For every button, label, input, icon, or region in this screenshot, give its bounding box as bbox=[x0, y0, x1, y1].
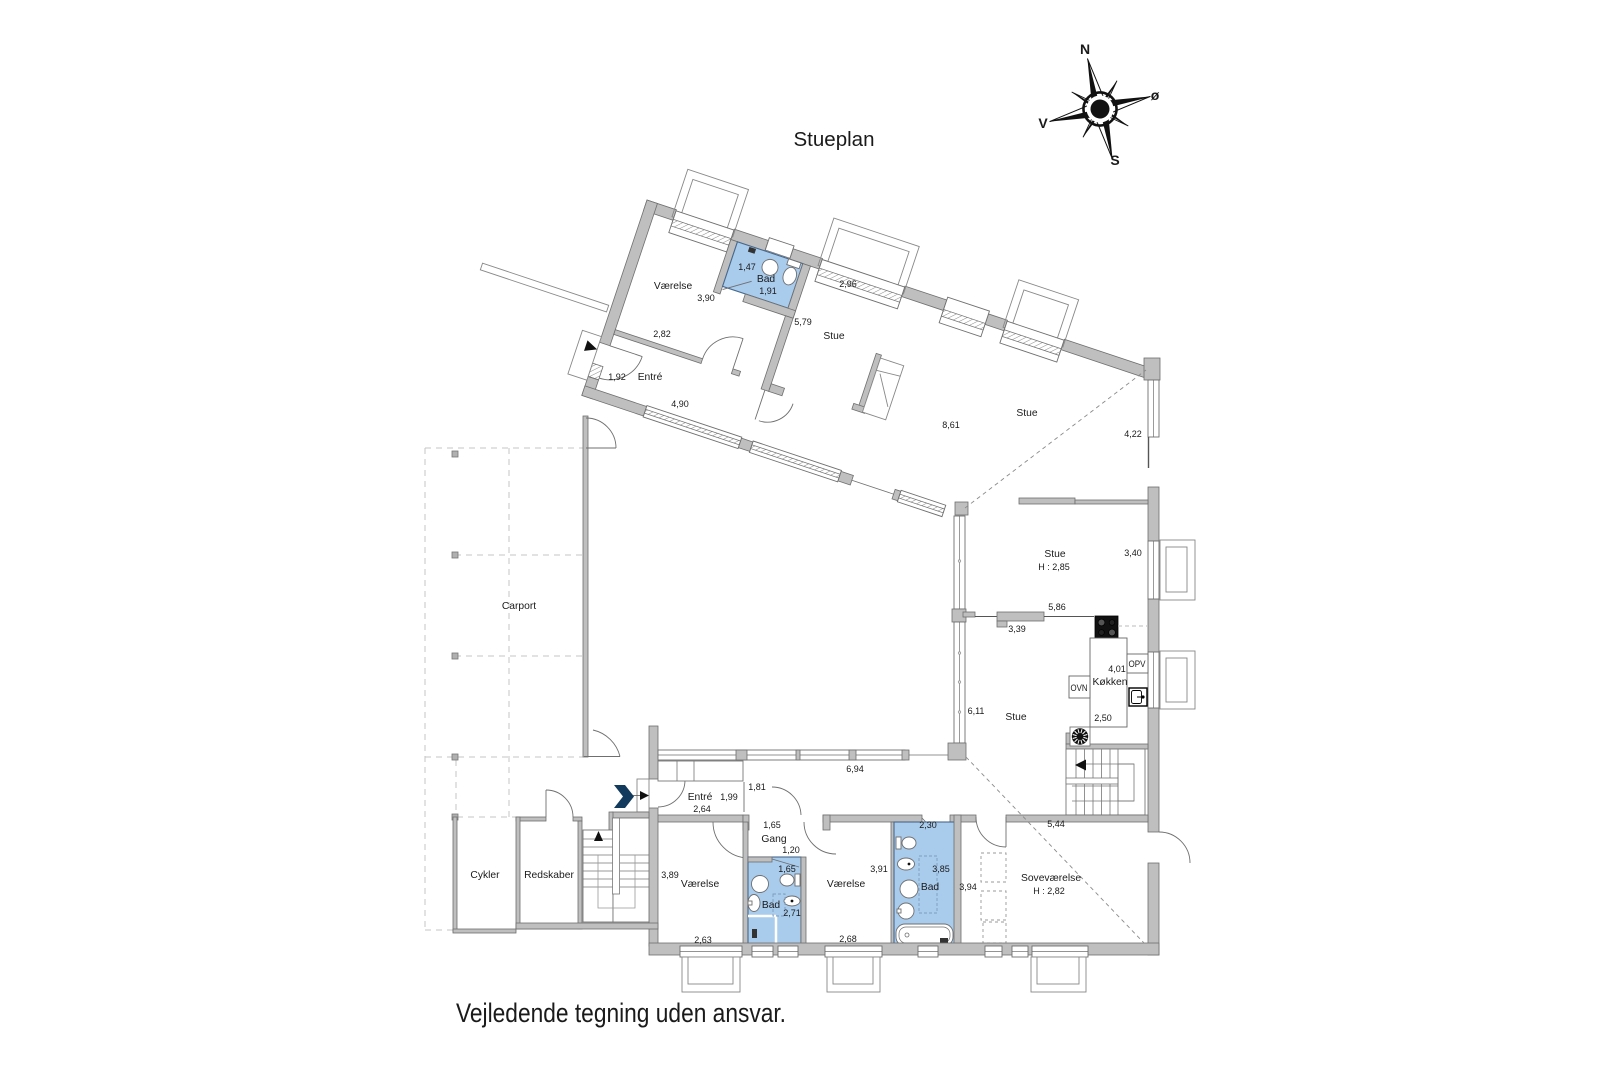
svg-text:Stue: Stue bbox=[1044, 549, 1065, 560]
svg-text:Cykler: Cykler bbox=[470, 870, 500, 881]
svg-text:Værelse: Værelse bbox=[681, 879, 720, 890]
svg-text:Værelse: Værelse bbox=[654, 281, 693, 292]
svg-text:1,47: 1,47 bbox=[738, 262, 756, 272]
svg-text:Stueplan: Stueplan bbox=[794, 128, 875, 151]
svg-text:3,39: 3,39 bbox=[1008, 624, 1026, 634]
svg-text:5,86: 5,86 bbox=[1048, 602, 1066, 612]
svg-text:6,11: 6,11 bbox=[968, 706, 985, 716]
svg-text:3,40: 3,40 bbox=[1124, 548, 1142, 558]
svg-text:2,68: 2,68 bbox=[839, 934, 857, 944]
svg-text:1,81: 1,81 bbox=[748, 782, 766, 792]
svg-text:Entré: Entré bbox=[688, 792, 713, 803]
svg-text:Værelse: Værelse bbox=[827, 879, 866, 890]
svg-text:Soveværelse: Soveværelse bbox=[1021, 873, 1081, 884]
svg-text:3,94: 3,94 bbox=[959, 882, 977, 892]
svg-text:OPV: OPV bbox=[1129, 659, 1146, 669]
svg-text:1,99: 1,99 bbox=[720, 792, 738, 802]
svg-text:2,50: 2,50 bbox=[1094, 713, 1112, 723]
svg-text:Vejledende tegning uden ansvar: Vejledende tegning uden ansvar. bbox=[456, 998, 786, 1028]
svg-text:Carport: Carport bbox=[502, 601, 536, 612]
svg-text:2,71: 2,71 bbox=[783, 908, 801, 918]
svg-text:3,85: 3,85 bbox=[932, 864, 950, 874]
svg-text:5,79: 5,79 bbox=[794, 317, 812, 327]
svg-text:8,61: 8,61 bbox=[942, 420, 960, 430]
svg-text:OVN: OVN bbox=[1071, 683, 1088, 693]
svg-text:Stue: Stue bbox=[1016, 408, 1037, 419]
svg-text:Gang: Gang bbox=[761, 834, 786, 845]
svg-text:1,91: 1,91 bbox=[759, 286, 777, 296]
svg-text:Bad: Bad bbox=[757, 274, 776, 285]
svg-text:V: V bbox=[1038, 115, 1048, 131]
svg-text:Entré: Entré bbox=[638, 372, 663, 383]
svg-text:2,64: 2,64 bbox=[693, 804, 711, 814]
svg-text:3,90: 3,90 bbox=[697, 293, 715, 303]
svg-text:1,20: 1,20 bbox=[782, 845, 800, 855]
svg-text:H : 2,82: H : 2,82 bbox=[1033, 886, 1065, 896]
svg-text:Redskaber: Redskaber bbox=[524, 870, 574, 881]
svg-text:3,89: 3,89 bbox=[661, 870, 679, 880]
svg-text:2,82: 2,82 bbox=[653, 329, 671, 339]
svg-text:1,65: 1,65 bbox=[778, 864, 796, 874]
svg-text:1,65: 1,65 bbox=[763, 820, 781, 830]
svg-text:4,01: 4,01 bbox=[1108, 664, 1126, 674]
svg-text:S: S bbox=[1110, 152, 1119, 168]
svg-text:4,90: 4,90 bbox=[671, 399, 689, 409]
svg-text:2,63: 2,63 bbox=[694, 935, 712, 945]
svg-text:N: N bbox=[1080, 41, 1090, 57]
svg-text:2,30: 2,30 bbox=[919, 820, 937, 830]
svg-text:Bad: Bad bbox=[921, 882, 940, 893]
svg-text:Stue: Stue bbox=[1005, 712, 1026, 723]
svg-text:5,44: 5,44 bbox=[1047, 819, 1065, 829]
svg-text:H : 2,85: H : 2,85 bbox=[1038, 562, 1070, 572]
svg-text:Bad: Bad bbox=[762, 900, 781, 911]
svg-text:3,91: 3,91 bbox=[870, 864, 888, 874]
svg-text:2,96: 2,96 bbox=[839, 279, 857, 289]
svg-text:Stue: Stue bbox=[823, 331, 844, 342]
svg-text:6,94: 6,94 bbox=[846, 764, 864, 774]
svg-text:4,22: 4,22 bbox=[1124, 429, 1142, 439]
svg-text:1,92: 1,92 bbox=[608, 372, 626, 382]
svg-text:Køkken: Køkken bbox=[1093, 677, 1128, 688]
svg-text:ø: ø bbox=[1151, 87, 1160, 103]
